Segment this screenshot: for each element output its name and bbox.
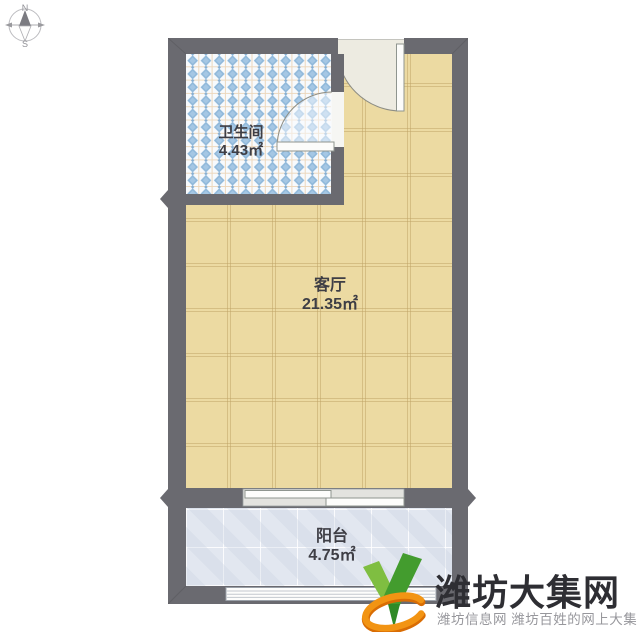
compass-north-label: N — [22, 3, 29, 13]
balcony-label: 阳台 4.75㎡ — [308, 527, 355, 565]
balcony-name: 阳台 — [316, 528, 348, 545]
bathroom-door-swing — [277, 92, 332, 147]
entry-door-swing — [337, 47, 401, 111]
floorplan-page: N S — [0, 0, 640, 640]
bathroom-label: 卫生间 4.43㎡ — [218, 124, 263, 160]
bathroom-name: 卫生间 — [218, 124, 263, 141]
balcony-sliding-door — [243, 489, 404, 506]
v-swoosh-logo-icon — [358, 552, 430, 632]
wall-joint-notch — [160, 190, 168, 208]
compass-east-arrow — [38, 23, 45, 28]
living-room-area: 21.35㎡ — [302, 295, 358, 314]
living-room-label: 客厅 21.35㎡ — [302, 276, 358, 314]
site-watermark: 潍坊大集网 潍坊信息网 潍坊百姓的网上大集 — [356, 546, 640, 638]
wall-joint-notch — [160, 489, 168, 507]
compass-south-label: S — [22, 39, 28, 48]
wall-joint-notch — [468, 489, 476, 507]
balcony-area: 4.75㎡ — [308, 546, 355, 565]
doors-windows-overlay — [168, 38, 468, 604]
bathroom-area: 4.43㎡ — [218, 142, 263, 160]
entry-door-leaf — [397, 44, 405, 111]
bathroom-door-leaf — [277, 142, 334, 151]
compass-west-arrow — [5, 23, 12, 28]
living-room-name: 客厅 — [314, 277, 346, 294]
bathroom-door-jamb — [331, 92, 344, 147]
watermark-tagline: 潍坊信息网 潍坊百姓的网上大集 — [437, 608, 637, 628]
floorplan: 卫生间 4.43㎡ 客厅 21.35㎡ 阳台 4.75㎡ — [168, 38, 468, 604]
compass-icon: N S — [4, 2, 46, 48]
